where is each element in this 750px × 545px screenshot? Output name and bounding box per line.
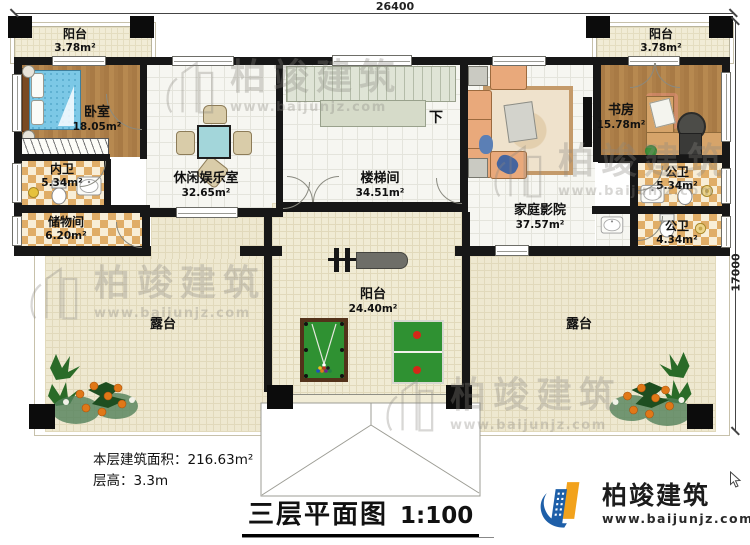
room-label-stairwell: 楼梯间 34.51m² bbox=[335, 172, 425, 199]
wall-stair-south bbox=[276, 202, 467, 212]
wall-bath1-bath2 bbox=[592, 206, 730, 214]
room-name: 储物间 bbox=[30, 216, 102, 230]
balcony-wall-east bbox=[462, 212, 470, 392]
room-label-storage: 储物间 6.20m² bbox=[30, 216, 102, 242]
dimension-top-line bbox=[14, 13, 734, 14]
leisure-chair bbox=[203, 105, 227, 124]
plan-scale: 1:100 bbox=[400, 503, 473, 529]
room-area: 5.34m² bbox=[30, 177, 94, 189]
floor-height-label: 层高： bbox=[93, 473, 134, 489]
mouse-cursor bbox=[729, 471, 742, 488]
room-name: 露台 bbox=[554, 318, 604, 333]
room-name: 露台 bbox=[138, 318, 188, 333]
window bbox=[332, 55, 412, 66]
room-area: 15.78m² bbox=[588, 119, 654, 131]
room-area: 5.34m² bbox=[646, 180, 708, 192]
window bbox=[721, 216, 731, 248]
bath-sink bbox=[600, 216, 624, 234]
side-table bbox=[468, 158, 488, 178]
pingpong-table bbox=[392, 320, 444, 384]
gym-bench bbox=[356, 252, 408, 269]
gym-bench-press bbox=[328, 246, 410, 274]
room-area: 3.78m² bbox=[40, 42, 110, 54]
stair-flight bbox=[286, 66, 456, 102]
pingpong-net-line bbox=[394, 351, 442, 353]
room-area: 37.57m² bbox=[490, 219, 590, 231]
pingpong-paddle bbox=[413, 331, 421, 339]
floor-height-line: 层高：3.3m bbox=[93, 469, 168, 489]
room-name: 家庭影院 bbox=[490, 204, 590, 219]
person-figure bbox=[479, 135, 493, 154]
leisure-chair bbox=[233, 131, 252, 155]
window bbox=[12, 163, 22, 203]
room-area: 24.40m² bbox=[330, 303, 416, 315]
window bbox=[495, 245, 529, 256]
stair-direction: 下 bbox=[424, 110, 448, 126]
room-name: 阳台 bbox=[626, 28, 696, 42]
window bbox=[172, 56, 234, 66]
dimension-top-value: 26400 bbox=[355, 0, 435, 13]
window bbox=[52, 56, 106, 66]
room-label-balcony-tr: 阳台 3.78m² bbox=[626, 28, 696, 54]
dimension-right-value: 17000 bbox=[730, 249, 743, 297]
floor-area-label: 本层建筑面积： bbox=[93, 452, 188, 468]
room-name: 公卫 bbox=[646, 220, 708, 234]
wall-storage-south bbox=[14, 246, 151, 256]
floor-area-line: 本层建筑面积：216.63m² bbox=[93, 448, 253, 468]
leisure-chair bbox=[176, 131, 195, 155]
room-area: 6.20m² bbox=[30, 230, 102, 242]
stair-direction-label: 下 bbox=[424, 110, 448, 126]
coffee-table bbox=[503, 101, 537, 143]
room-name: 公卫 bbox=[646, 166, 708, 180]
column bbox=[709, 16, 733, 38]
billiard-detail bbox=[304, 322, 344, 378]
room-name: 楼梯间 bbox=[335, 172, 425, 187]
leisure-table bbox=[197, 125, 231, 159]
brand-logo: 柏竣建筑 www.baijunjz.com bbox=[538, 476, 750, 532]
nightstand-lamp bbox=[22, 65, 35, 78]
bed-pillow bbox=[31, 100, 44, 125]
brand-name: 柏竣建筑 bbox=[602, 483, 750, 508]
room-name: 阳台 bbox=[330, 288, 416, 303]
window bbox=[12, 74, 22, 132]
room-name: 书房 bbox=[588, 104, 654, 119]
room-label-study: 书房 15.78m² bbox=[588, 104, 654, 131]
theater-sofa-top bbox=[490, 63, 527, 90]
room-label-public-bath1: 公卫 5.34m² bbox=[646, 166, 708, 192]
column bbox=[29, 404, 55, 429]
room-name: 卧室 bbox=[62, 106, 132, 121]
balcony-wall-west bbox=[264, 212, 272, 392]
room-area: 18.05m² bbox=[62, 121, 132, 133]
brand-url: www.baijunjz.com bbox=[602, 511, 750, 526]
room-label-home-theater: 家庭影院 37.57m² bbox=[490, 204, 590, 231]
column bbox=[130, 16, 154, 38]
room-label-inner-bath: 内卫 5.34m² bbox=[30, 163, 94, 189]
side-table bbox=[468, 66, 488, 86]
room-area: 3.78m² bbox=[626, 42, 696, 54]
room-area: 32.65m² bbox=[158, 187, 254, 199]
wing-wall-left bbox=[240, 246, 282, 256]
column bbox=[687, 404, 713, 429]
window bbox=[492, 56, 546, 66]
brand-logo-icon bbox=[538, 476, 594, 532]
plan-title-block: 三层平面图1:100 bbox=[242, 494, 479, 537]
room-name: 休闲娱乐室 bbox=[158, 172, 254, 187]
dimension-right-line bbox=[735, 20, 736, 432]
room-label-leisure: 休闲娱乐室 32.65m² bbox=[158, 172, 254, 199]
floor-area-value: 216.63m² bbox=[188, 452, 254, 468]
bed-pillow bbox=[31, 73, 44, 98]
room-name: 阳台 bbox=[40, 28, 110, 42]
room-area: 34.51m² bbox=[335, 187, 425, 199]
column bbox=[446, 385, 472, 409]
room-label-public-bath2: 公卫 4.34m² bbox=[646, 220, 708, 246]
room-label-terrace-right: 露台 bbox=[554, 318, 604, 333]
desk-monitor bbox=[679, 133, 702, 155]
room-label-bedroom: 卧室 18.05m² bbox=[62, 106, 132, 133]
room-name: 内卫 bbox=[30, 163, 94, 177]
window bbox=[176, 207, 238, 218]
room-area: 4.34m² bbox=[646, 234, 708, 246]
stair-landing bbox=[320, 100, 426, 127]
plan-title-underline bbox=[242, 537, 494, 538]
wall-study-bath1 bbox=[598, 155, 730, 163]
window bbox=[721, 72, 731, 142]
floor-plan-page: 阳台 3.78m² 卧室 18.05m² 内卫 5.34m² 储物间 6.20m… bbox=[0, 0, 750, 545]
column bbox=[267, 385, 293, 409]
plan-title: 三层平面图 bbox=[248, 500, 388, 530]
gym-barbell bbox=[328, 258, 356, 261]
pingpong-paddle bbox=[413, 366, 421, 374]
room-label-balcony-main: 阳台 24.40m² bbox=[330, 288, 416, 315]
column bbox=[586, 16, 610, 38]
room-label-balcony-tl: 阳台 3.78m² bbox=[40, 28, 110, 54]
wall-bath-storage bbox=[14, 205, 150, 213]
porch-roof-outline bbox=[258, 400, 484, 500]
room-label-terrace-left: 露台 bbox=[138, 318, 188, 333]
billiard-table bbox=[300, 318, 348, 382]
window bbox=[721, 168, 731, 204]
window bbox=[12, 216, 22, 246]
wall-leisure-stair bbox=[276, 62, 283, 212]
floor-height-value: 3.3m bbox=[134, 473, 169, 489]
column bbox=[8, 16, 32, 38]
wall-bedroom-bath bbox=[18, 154, 110, 161]
